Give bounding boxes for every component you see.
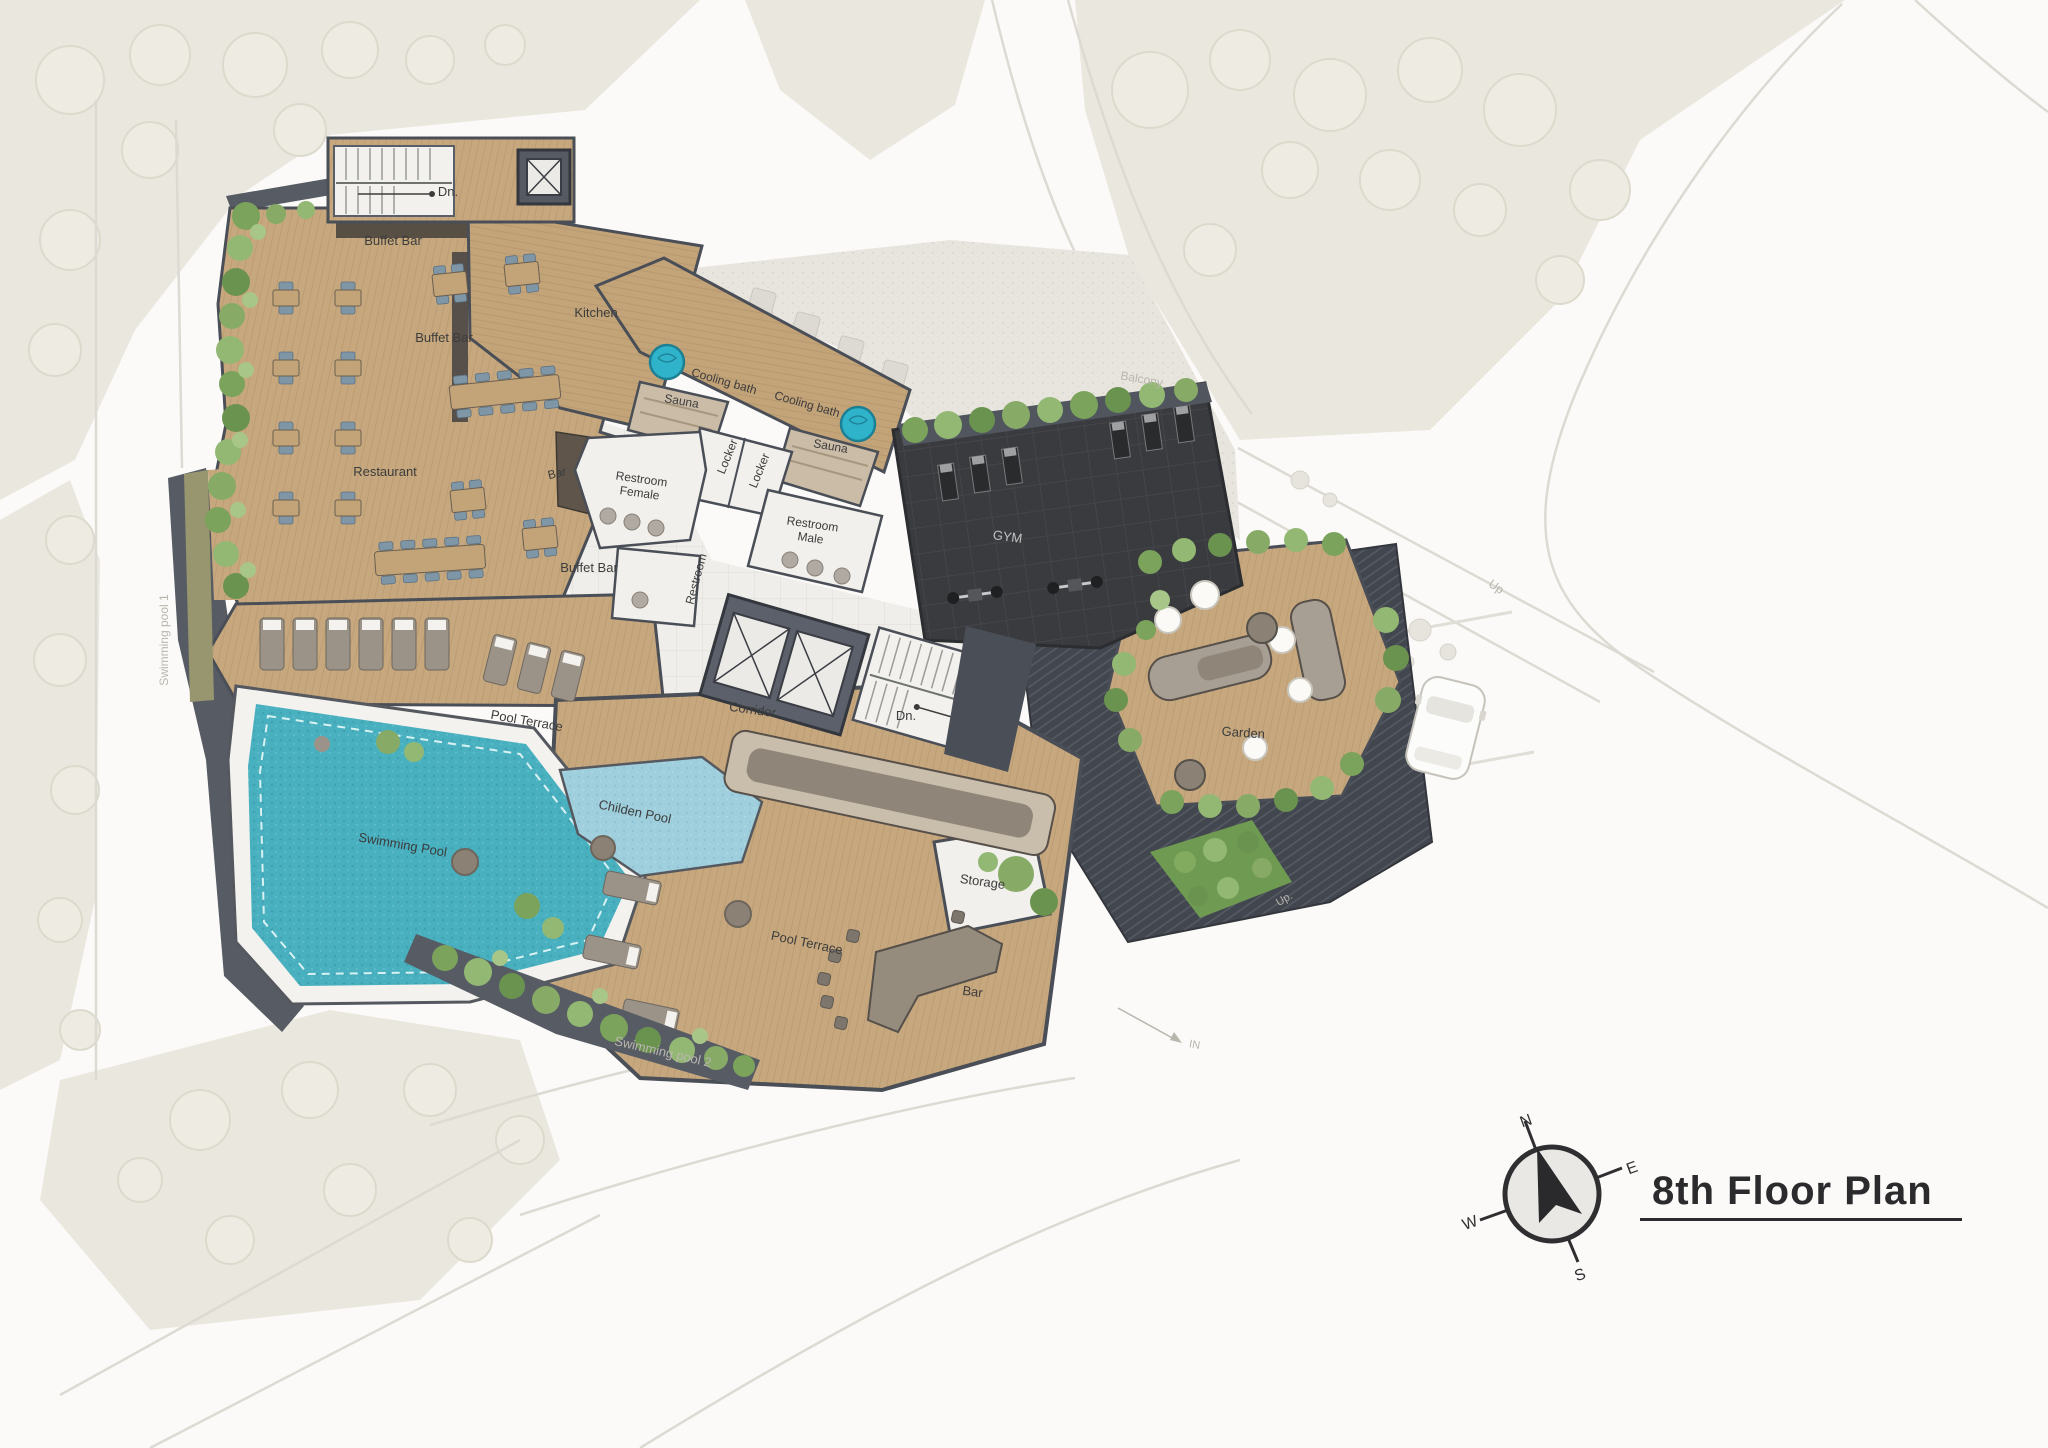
dn-top-label: Dn. xyxy=(438,184,458,199)
buffet-bar-mid-label: Buffet Bar xyxy=(415,330,473,345)
garden-label: Garden xyxy=(1221,724,1265,742)
title-underline xyxy=(1640,1218,1962,1221)
buffet-bar-bottom-label: Buffet Bar xyxy=(560,560,618,575)
dn-center-label: Dn. xyxy=(896,708,916,723)
in-entry-label: IN xyxy=(1188,1038,1201,1052)
swimming-pool-1-label: Swimming pool 1 xyxy=(157,594,171,686)
elevator-top xyxy=(518,150,570,204)
gym-area xyxy=(893,378,1242,648)
page-title: 8th Floor Plan xyxy=(1652,1169,1933,1213)
pool-island xyxy=(452,849,478,875)
restaurant-label: Restaurant xyxy=(353,464,417,479)
kitchen-label: Kitchen xyxy=(574,305,617,320)
buffet-bar-top-label: Buffet Bar xyxy=(364,233,422,248)
floor-plan-page: Dn.Buffet BarBuffet BarKitchenRestaurant… xyxy=(0,0,2048,1448)
bar-pool-label: Bar xyxy=(962,983,985,1001)
floor-plan-drawing: Dn.Buffet BarBuffet BarKitchenRestaurant… xyxy=(0,0,2048,1448)
